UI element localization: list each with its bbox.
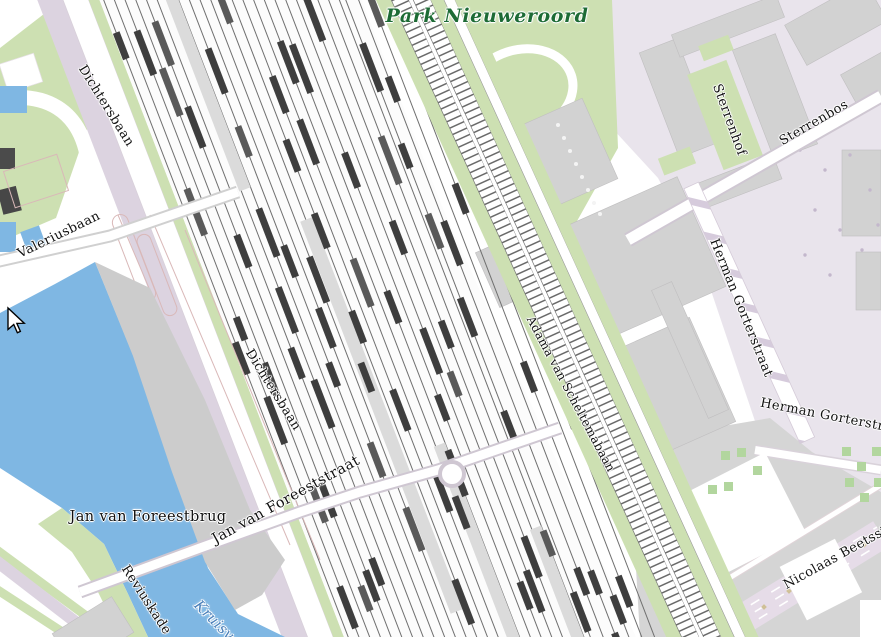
- water-basin: [0, 86, 27, 113]
- map-graphics: [0, 0, 881, 637]
- small-building-dark: [0, 148, 15, 169]
- water-basin: [0, 222, 16, 252]
- map-canvas[interactable]: Park Nieuweroord Dichtersbaan Dichtersba…: [0, 0, 881, 637]
- roundabout: [440, 462, 464, 486]
